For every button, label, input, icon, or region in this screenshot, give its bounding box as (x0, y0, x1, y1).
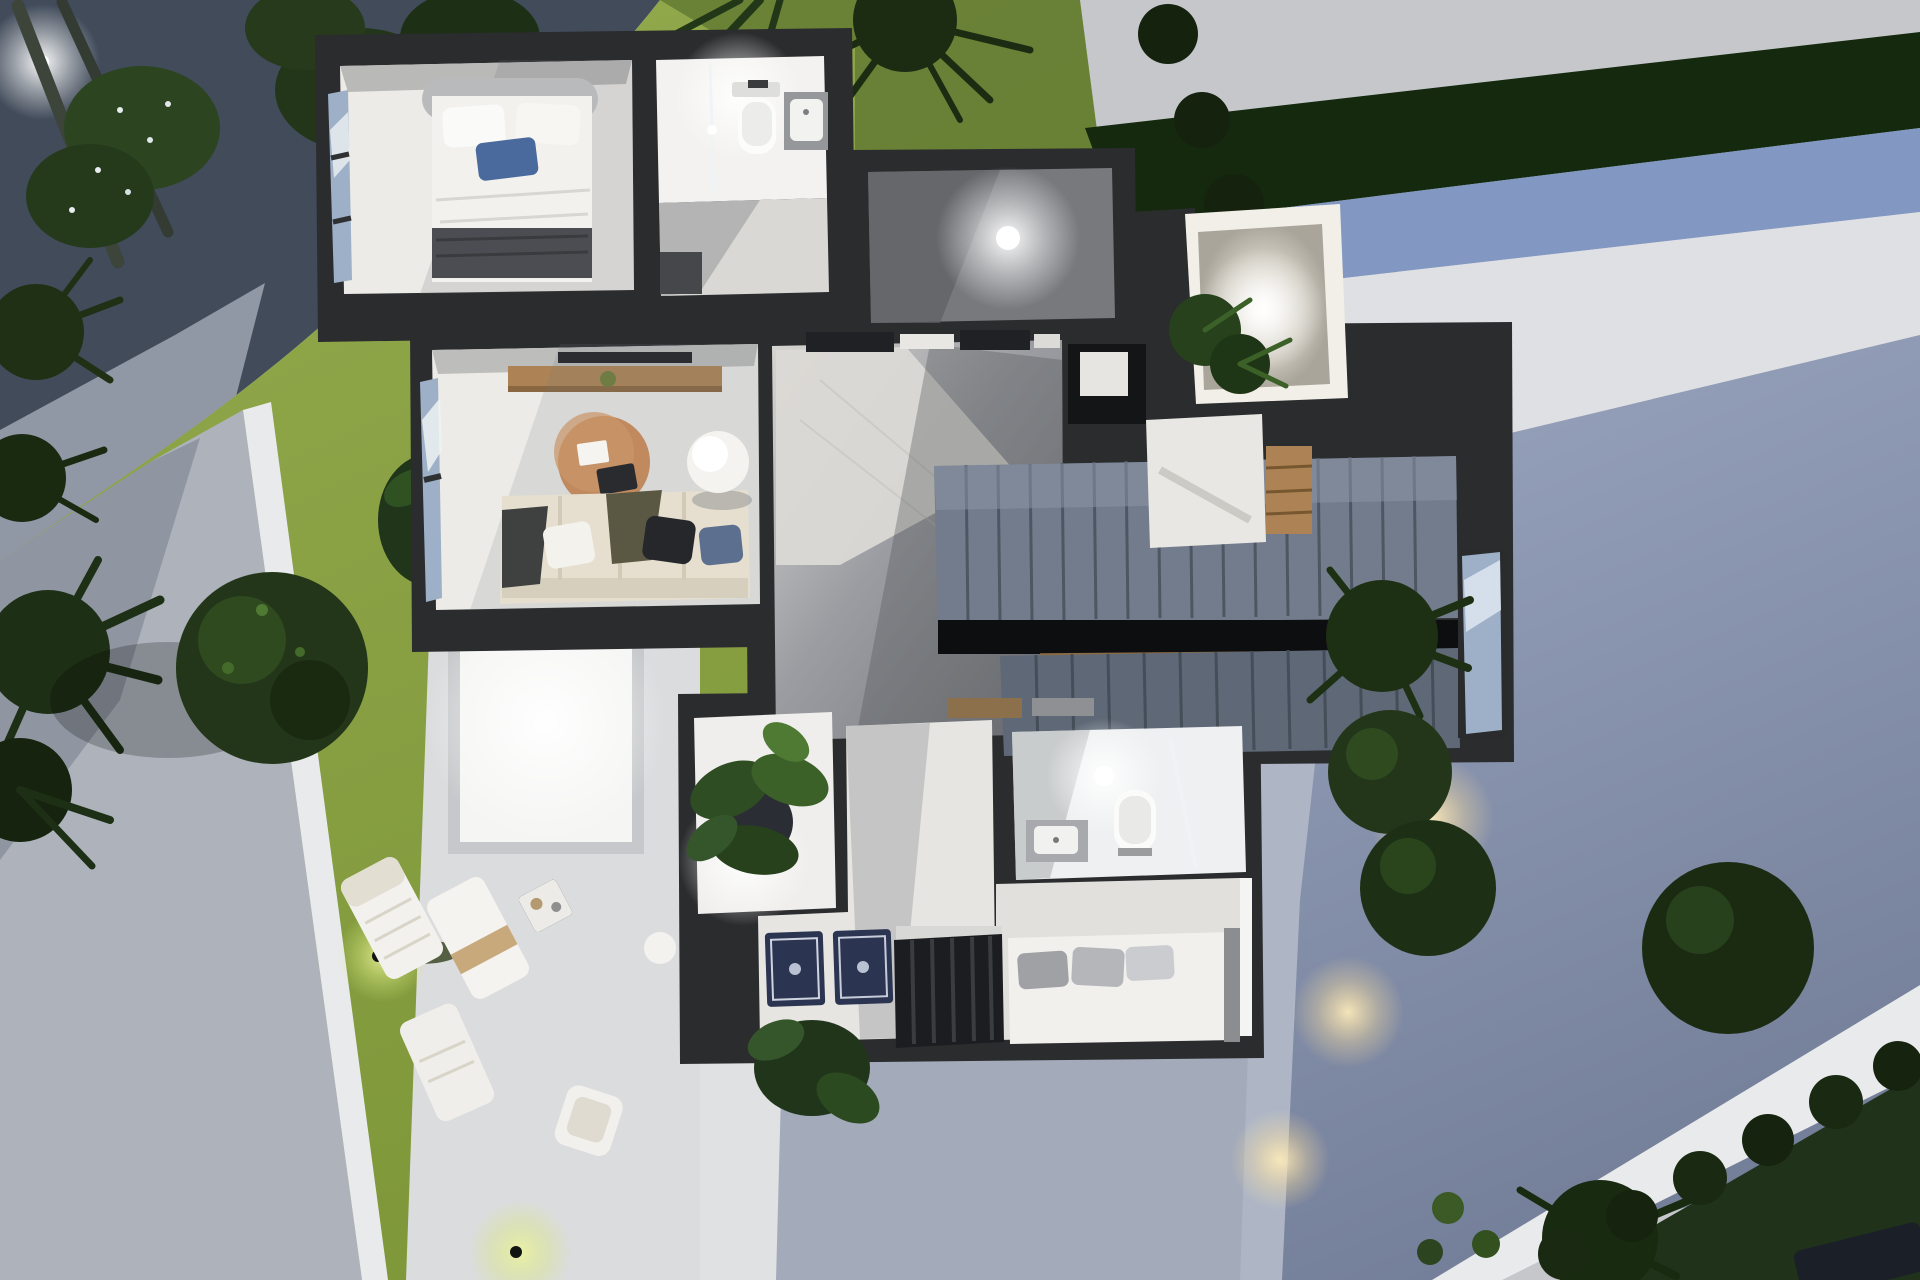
gray-pillow-2 (1071, 947, 1125, 988)
window-mullion (424, 476, 441, 480)
void-floor-below (1080, 352, 1128, 396)
bottom-right-tree (1642, 862, 1814, 1034)
bathroom-lower-light (1094, 766, 1114, 786)
right-tree-2 (1360, 820, 1496, 956)
landing-window (1458, 548, 1508, 738)
beam-gap-view-2 (1034, 334, 1060, 348)
wardrobe-clothes (894, 926, 1004, 1048)
wood-lintel (948, 698, 1022, 718)
path-light-pool-6 (1230, 1110, 1330, 1210)
round-tree (176, 572, 368, 764)
room-bedroom-top (328, 60, 634, 294)
pillow-white (542, 520, 597, 570)
headboard-lower (1224, 928, 1240, 1042)
courtyard (1169, 204, 1348, 404)
toilet-lower (1114, 790, 1156, 856)
path-light-pool-5 (1292, 956, 1404, 1068)
right-tree-1-highlight (1346, 728, 1398, 780)
toilet-top (732, 80, 780, 154)
hall-beam-2 (960, 330, 1030, 350)
hanging-chair (687, 431, 752, 510)
entry-light (996, 226, 1020, 250)
shower-sparkle (707, 125, 717, 135)
bottom-right-tree-highlight (1666, 886, 1734, 954)
pillow-black (641, 515, 697, 566)
patio-stool (644, 932, 676, 964)
pillow-blue (475, 136, 539, 181)
room-entry (868, 166, 1115, 323)
beam-gap-view-1 (900, 334, 954, 349)
bed (422, 78, 598, 282)
hall-beam-1 (806, 332, 894, 352)
floorplan-render (0, 0, 1920, 1280)
gray-pillow-1 (1017, 950, 1069, 989)
bathroom-cabinet (660, 252, 702, 294)
pillow-bluegray (698, 524, 744, 566)
gray-pillow-3 (1125, 945, 1175, 981)
bed-lower (1008, 928, 1240, 1044)
vanity-lower (1026, 820, 1088, 862)
lawn-spotlight2 (510, 1246, 522, 1258)
gray-lintel (1032, 698, 1094, 716)
right-tree-2-highlight (1380, 838, 1436, 894)
room-living (420, 344, 760, 610)
east-wall-lit-strip (1240, 878, 1252, 1036)
table-book (577, 440, 610, 466)
sink-top (784, 92, 828, 150)
stair-landing (1146, 414, 1266, 548)
room-bathroom-top (656, 32, 829, 296)
